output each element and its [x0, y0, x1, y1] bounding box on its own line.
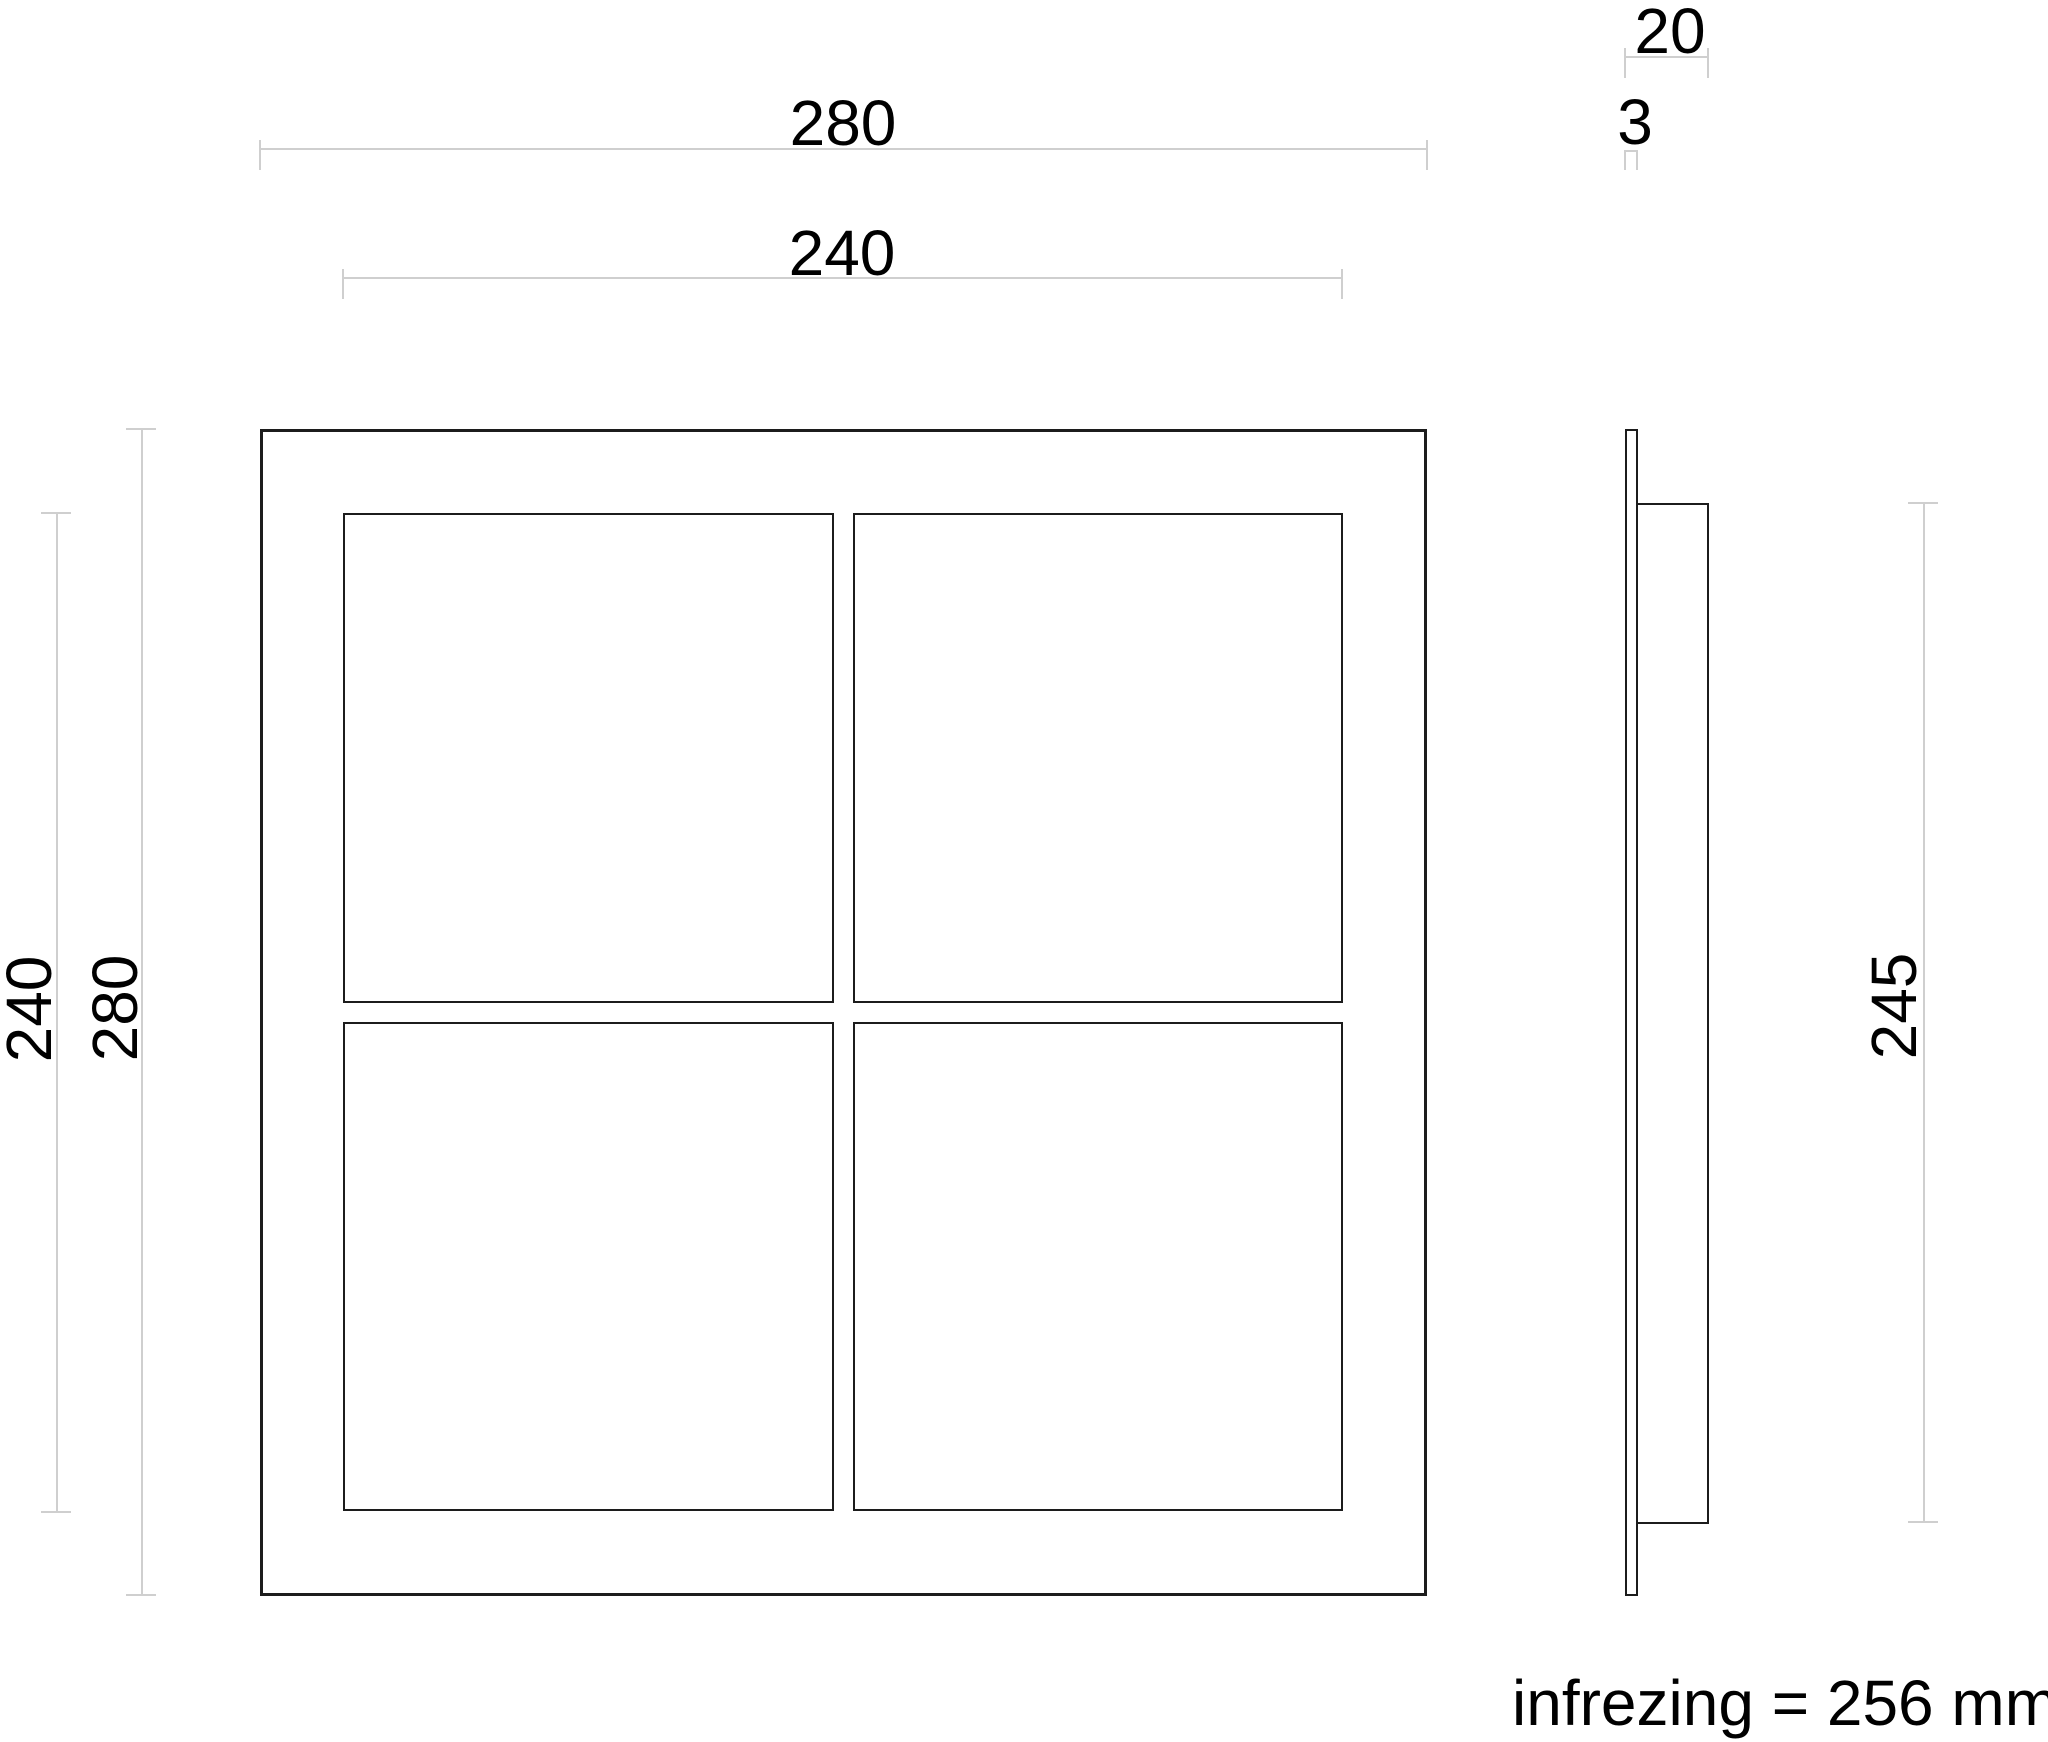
front-view-pane-bottom-left — [343, 1022, 834, 1511]
dim-inner-height-tick-bottom — [41, 1511, 71, 1513]
technical-drawing-canvas: 280 240 240 280 20 3 245 infrezing = 256… — [0, 0, 2048, 1742]
dim-outer-height-tick-bottom — [126, 1594, 156, 1596]
dim-outer-height-tick-top — [126, 428, 156, 430]
dim-inner-height-label: 240 — [0, 909, 61, 1109]
dim-inner-height-tick-top — [41, 512, 71, 514]
dim-outer-width-label: 280 — [743, 91, 943, 155]
front-view-pane-top-left — [343, 513, 834, 1003]
infrezing-note: infrezing = 256 mm — [1512, 1671, 2048, 1735]
dim-inner-width-tick-left — [342, 269, 344, 299]
dim-recess-height-tick-bottom — [1908, 1521, 1938, 1523]
dim-outer-width-tick-right — [1426, 140, 1428, 170]
front-view-pane-top-right — [853, 513, 1343, 1003]
dim-recess-height-tick-top — [1908, 502, 1938, 504]
front-view-pane-bottom-right — [853, 1022, 1343, 1511]
dim-inner-width-label: 240 — [742, 221, 942, 285]
dim-depth-label: 20 — [1570, 0, 1770, 63]
dim-inner-width-tick-right — [1341, 269, 1343, 299]
side-view-recess-block — [1636, 503, 1709, 1524]
dim-outer-width-tick-left — [259, 140, 261, 170]
dim-recess-height-label: 245 — [1862, 906, 1926, 1106]
dim-plate-thickness-label: 3 — [1535, 90, 1735, 154]
dim-outer-height-label: 280 — [83, 908, 147, 1108]
